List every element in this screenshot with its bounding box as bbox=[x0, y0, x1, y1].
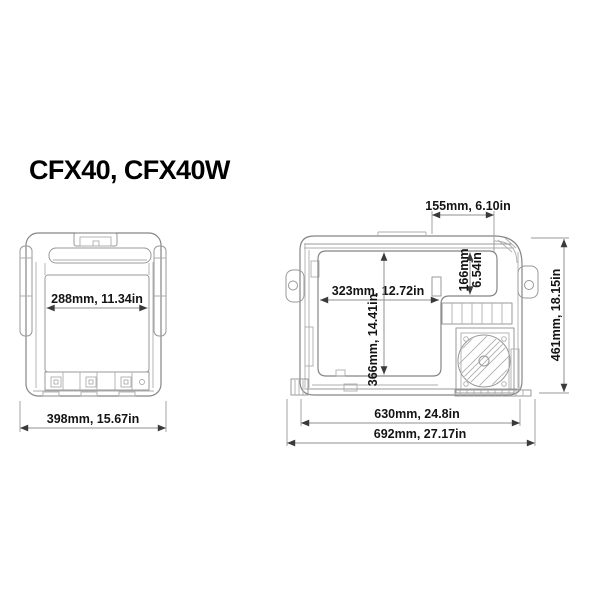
side-top-section-label: 155mm, 6.10in bbox=[425, 199, 510, 213]
front-right-handle bbox=[154, 246, 166, 336]
side-base-length-label: 630mm, 24.8in bbox=[374, 407, 459, 421]
side-view: 155mm, 6.10in 166mm 6.54in 323mm, 12.72i… bbox=[286, 199, 569, 446]
side-vent-slats bbox=[442, 303, 512, 324]
side-hinge-lug bbox=[286, 270, 304, 302]
side-step-depth-in-label: 6.54in bbox=[470, 252, 484, 287]
front-drain-detail bbox=[140, 380, 145, 385]
fan-circle bbox=[458, 335, 510, 387]
front-face-panel bbox=[36, 262, 153, 388]
side-base-length-dimension: 630mm, 24.8in bbox=[301, 399, 520, 426]
side-floor-step bbox=[336, 370, 345, 376]
front-inner-width-dimension: 288mm, 11.34in bbox=[47, 292, 148, 308]
side-overall-length-label: 692mm, 27.17in bbox=[374, 427, 466, 441]
dimension-diagram: CFX40, CFX40W bbox=[0, 0, 600, 600]
page-title: CFX40, CFX40W bbox=[29, 155, 231, 185]
front-view: 288mm, 11.34in 398mm, 15.67in bbox=[20, 233, 166, 432]
side-overall-height-label: 461mm, 18.15in bbox=[549, 269, 563, 361]
side-step-depth-mm-label: 166mm bbox=[457, 248, 471, 291]
front-inner-width-label: 288mm, 11.34in bbox=[51, 292, 143, 306]
front-lid-bar bbox=[49, 248, 151, 263]
side-step-depth-dimension: 166mm 6.54in bbox=[457, 248, 484, 294]
side-body-outline bbox=[300, 236, 522, 395]
side-left-wall bbox=[305, 244, 319, 390]
side-fan-unit bbox=[428, 299, 530, 419]
side-step-notch bbox=[432, 277, 441, 296]
side-overall-height-dimension: 461mm, 18.15in bbox=[531, 238, 569, 393]
front-lid-latch bbox=[74, 233, 117, 246]
front-overall-width-label: 398mm, 15.67in bbox=[47, 412, 139, 426]
side-compartment-depth-label: 366mm, 14.41in bbox=[366, 294, 380, 386]
side-lid-lines bbox=[304, 244, 514, 248]
side-latch bbox=[518, 266, 538, 298]
front-bottom-vent-strip bbox=[33, 372, 154, 396]
front-overall-width-dimension: 398mm, 15.67in bbox=[20, 401, 166, 432]
side-compartment-depth-dimension: 366mm, 14.41in bbox=[366, 253, 384, 387]
